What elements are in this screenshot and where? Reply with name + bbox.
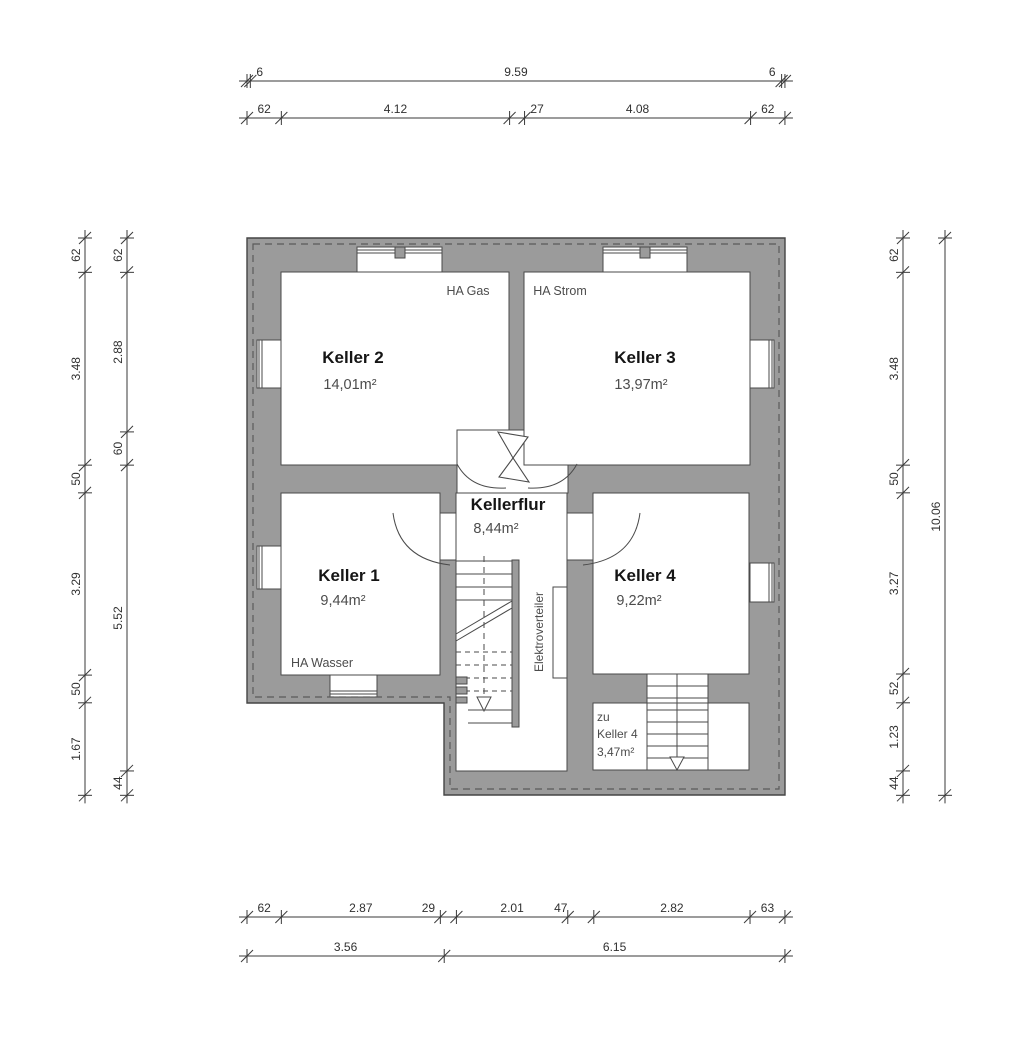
dim-label: 44 xyxy=(887,776,901,790)
stair-spine-wall xyxy=(512,560,519,727)
window-north-keller3 xyxy=(603,247,687,272)
dim-label: 62 xyxy=(69,248,83,262)
elektroverteiler-cabinet xyxy=(553,587,567,678)
room-name-keller4: Keller 4 xyxy=(614,566,676,585)
dim-label: 3.27 xyxy=(887,571,901,595)
dim-label: 1.67 xyxy=(69,737,83,761)
room-keller3-floor xyxy=(524,272,750,465)
dim-label: 62 xyxy=(257,102,271,116)
dim-label: 9.59 xyxy=(504,65,528,79)
dim-label: 1.23 xyxy=(887,725,901,749)
dim-label: 50 xyxy=(69,682,83,696)
dim-label: 2.87 xyxy=(349,901,373,915)
room-name-keller2: Keller 2 xyxy=(322,348,383,367)
dim-label: 3.48 xyxy=(887,357,901,381)
label-ha-strom: HA Strom xyxy=(533,284,587,298)
window-west-keller2 xyxy=(257,340,281,388)
label-zu-keller4-line2: Keller 4 xyxy=(597,727,638,741)
dim-label: 62 xyxy=(111,248,125,262)
room-area-keller2: 14,01m² xyxy=(323,377,376,393)
dim-label: 62 xyxy=(761,102,775,116)
dim-label: 6 xyxy=(769,65,776,79)
dim-label: 63 xyxy=(761,901,775,915)
room-name-keller3: Keller 3 xyxy=(614,348,675,367)
label-zu-keller4-line1: zu xyxy=(597,710,610,724)
room-area-keller4: 9,22m² xyxy=(616,593,661,609)
dim-label: 50 xyxy=(69,472,83,486)
dim-label: 60 xyxy=(111,442,125,456)
room-area-keller1: 9,44m² xyxy=(320,593,365,609)
dim-label: 5.52 xyxy=(111,606,125,630)
dim-label: 27 xyxy=(530,102,544,116)
floorplan xyxy=(247,238,785,795)
window-east-keller3 xyxy=(750,340,774,388)
dim-label: 4.12 xyxy=(384,102,408,116)
dim-label: 29 xyxy=(422,901,436,915)
dim-label: 3.48 xyxy=(69,357,83,381)
dim-line-top_inner: 624.12274.0862 xyxy=(239,102,793,125)
dim-label: 4.08 xyxy=(626,102,650,116)
dim-label: 62 xyxy=(887,248,901,262)
dim-line-left_inner: 622.88605.5244 xyxy=(111,230,134,803)
room-area-keller3: 13,97m² xyxy=(614,377,667,393)
dim-label: 3.29 xyxy=(69,572,83,596)
dim-line-right_inner: 623.48503.27521.2344 xyxy=(887,230,910,803)
window-west-keller1 xyxy=(257,546,281,589)
dim-label: 50 xyxy=(887,472,901,486)
dim-label: 10.06 xyxy=(929,501,943,531)
dim-line-bottom_outer: 3.566.15 xyxy=(239,940,793,963)
dim-label: 2.01 xyxy=(500,901,524,915)
dim-label: 3.56 xyxy=(334,940,358,954)
dim-label: 6.15 xyxy=(603,940,627,954)
dim-line-bottom_inner: 622.87292.01472.8263 xyxy=(239,901,793,924)
dim-label: 47 xyxy=(554,901,568,915)
label-elektroverteiler: Elektroverteiler xyxy=(532,592,546,672)
door-gap-keller1 xyxy=(440,513,456,560)
dim-label: 6 xyxy=(256,65,263,79)
label-ha-gas: HA Gas xyxy=(446,284,489,298)
door-gap-keller4 xyxy=(567,513,593,560)
dim-label: 44 xyxy=(111,776,125,790)
dim-line-top_outer: 69.596 xyxy=(239,65,793,88)
room-area-kellerflur: 8,44m² xyxy=(473,521,518,537)
window-north-keller2 xyxy=(357,247,442,272)
label-zu-keller4-area: 3,47m² xyxy=(597,745,634,759)
dim-label: 52 xyxy=(887,681,901,695)
basement-floorplan-drawing: Keller 2 14,01m² Keller 3 13,97m² Keller… xyxy=(0,0,1024,1038)
label-ha-wasser: HA Wasser xyxy=(291,656,353,670)
window-south-keller1 xyxy=(330,675,377,697)
floorplan-page: Keller 2 14,01m² Keller 3 13,97m² Keller… xyxy=(0,0,1024,1038)
dim-label: 2.88 xyxy=(111,340,125,364)
dim-line-right_outer: 10.06 xyxy=(929,230,952,803)
room-name-keller1: Keller 1 xyxy=(318,566,379,585)
dim-label: 62 xyxy=(257,901,271,915)
window-east-keller4 xyxy=(750,563,774,602)
dim-label: 2.82 xyxy=(660,901,684,915)
dim-line-left_outer: 623.48503.29501.67 xyxy=(69,230,92,803)
room-name-kellerflur: Kellerflur xyxy=(471,495,546,514)
